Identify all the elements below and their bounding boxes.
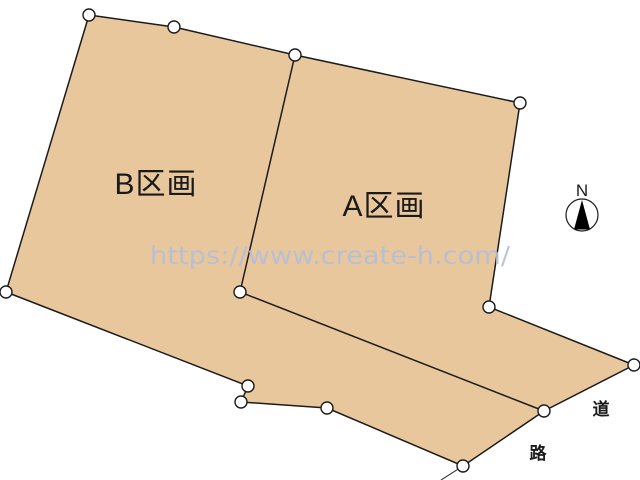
watermark-url-text: https://www.create-h.com/ (150, 241, 511, 270)
vertex-marker (0, 286, 12, 298)
vertex-marker (483, 301, 495, 313)
vertex-marker (321, 402, 333, 414)
vertex-marker (234, 286, 246, 298)
vertex-marker (628, 359, 640, 371)
vertex-marker (538, 405, 550, 417)
vertex-marker (457, 460, 469, 472)
parcel-a-label: A区画 (342, 190, 425, 223)
vertex-marker (242, 380, 254, 392)
vertex-marker (235, 396, 247, 408)
road-label-top: 道 (593, 399, 610, 419)
compass-north-label: N (576, 181, 588, 200)
vertex-marker (289, 49, 301, 61)
north-compass: N (566, 181, 598, 231)
parcel-b-label: B区画 (114, 168, 197, 201)
vertex-marker (168, 21, 180, 33)
vertex-marker (83, 9, 95, 21)
land-plot-diagram: https://www.create-h.com/ B区画 A区画 道 路 N (0, 0, 640, 480)
plot-map-canvas: https://www.create-h.com/ B区画 A区画 道 路 N (0, 0, 640, 480)
road-label-bottom: 路 (530, 443, 548, 463)
vertex-marker (514, 97, 526, 109)
